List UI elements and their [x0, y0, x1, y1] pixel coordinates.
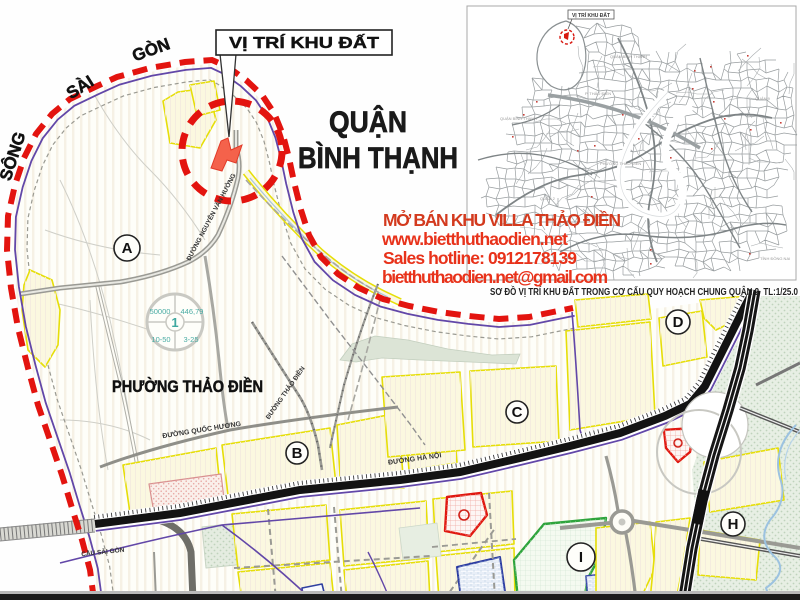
svg-text:B: B	[292, 445, 303, 462]
svg-text:P. THẢO ĐIỀN: P. THẢO ĐIỀN	[585, 91, 611, 96]
svg-text:C: C	[512, 404, 523, 421]
svg-text:PHƯỜNG THẢO ĐIỀN: PHƯỜNG THẢO ĐIỀN	[112, 377, 263, 396]
svg-text:10-50: 10-50	[151, 335, 170, 344]
svg-text:QUẬN BÌNH THẠNH: QUẬN BÌNH THẠNH	[610, 54, 647, 59]
svg-text:3-25: 3-25	[183, 335, 198, 344]
svg-text:www.bietthuthaodien.net: www.bietthuthaodien.net	[381, 229, 568, 249]
svg-text:H: H	[728, 516, 739, 533]
svg-text:1: 1	[171, 315, 178, 330]
svg-text:50000: 50000	[150, 307, 171, 316]
svg-text:BÌNH THẠNH: BÌNH THẠNH	[298, 141, 458, 175]
svg-text:446,79: 446,79	[181, 307, 204, 316]
svg-text:A: A	[122, 240, 133, 257]
svg-text:VỊ TRÍ KHU ĐẤT: VỊ TRÍ KHU ĐẤT	[229, 33, 379, 52]
svg-text:QUẬN 2: QUẬN 2	[540, 196, 556, 201]
svg-text:QUẬN 9: QUẬN 9	[755, 96, 771, 101]
svg-text:QUẬN BÌNH THẠNH: QUẬN BÌNH THẠNH	[500, 116, 537, 121]
svg-text:PHƯỜNG THẢO ĐIỀN: PHƯỜNG THẢO ĐIỀN	[600, 161, 641, 166]
svg-text:TỈNH ĐỒNG NAI: TỈNH ĐỒNG NAI	[760, 256, 790, 261]
svg-text:QUẬN: QUẬN	[329, 105, 407, 139]
svg-text:Sales hotline: 0912178139: Sales hotline: 0912178139	[383, 248, 577, 268]
svg-text:MỞ BÁN KHU VILLA THẢO ĐIỀN: MỞ BÁN KHU VILLA THẢO ĐIỀN	[383, 209, 621, 230]
svg-text:bietthuthaodien.net@gmail.com: bietthuthaodien.net@gmail.com	[382, 267, 608, 287]
svg-text:VỊ TRÍ KHU ĐẤT: VỊ TRÍ KHU ĐẤT	[572, 11, 610, 19]
svg-text:D: D	[673, 314, 684, 331]
svg-text:I: I	[579, 549, 583, 566]
